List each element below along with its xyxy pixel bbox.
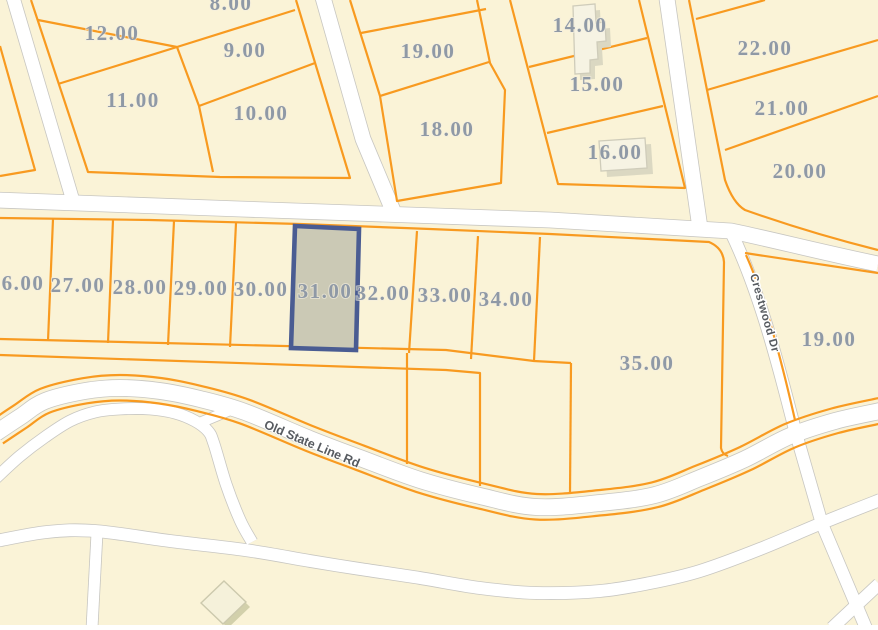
svg-text:11.00: 11.00 <box>106 88 160 112</box>
svg-text:34.00: 34.00 <box>479 287 534 311</box>
svg-text:8.00: 8.00 <box>210 0 253 15</box>
svg-text:15.00: 15.00 <box>570 72 625 96</box>
svg-text:9.00: 9.00 <box>224 38 267 62</box>
svg-text:21.00: 21.00 <box>755 96 810 120</box>
svg-text:27.00: 27.00 <box>51 273 106 297</box>
svg-text:20.00: 20.00 <box>773 159 828 183</box>
svg-text:30.00: 30.00 <box>234 277 289 301</box>
svg-text:10.00: 10.00 <box>234 101 289 125</box>
svg-text:28.00: 28.00 <box>113 275 168 299</box>
svg-text:14.00: 14.00 <box>553 13 608 37</box>
svg-text:12.00: 12.00 <box>85 21 140 45</box>
svg-text:22.00: 22.00 <box>738 36 793 60</box>
svg-text:16.00: 16.00 <box>588 140 643 164</box>
svg-text:29.00: 29.00 <box>174 276 229 300</box>
svg-text:33.00: 33.00 <box>418 283 473 307</box>
svg-text:19.00: 19.00 <box>401 39 456 63</box>
svg-text:26.00: 26.00 <box>0 271 44 295</box>
svg-text:32.00: 32.00 <box>356 281 411 305</box>
svg-text:18.00: 18.00 <box>420 117 475 141</box>
svg-text:31.00: 31.00 <box>298 279 353 303</box>
svg-text:35.00: 35.00 <box>620 351 675 375</box>
svg-text:19.00: 19.00 <box>802 327 857 351</box>
